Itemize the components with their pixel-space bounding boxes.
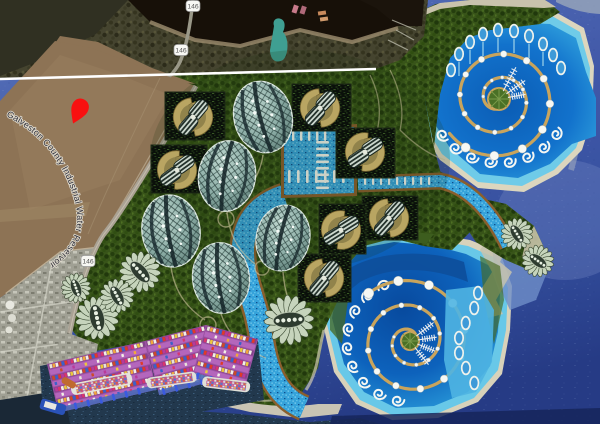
svg-text:146: 146 xyxy=(82,259,94,266)
svg-text:146: 146 xyxy=(187,4,199,11)
svg-text:146: 146 xyxy=(175,48,187,55)
